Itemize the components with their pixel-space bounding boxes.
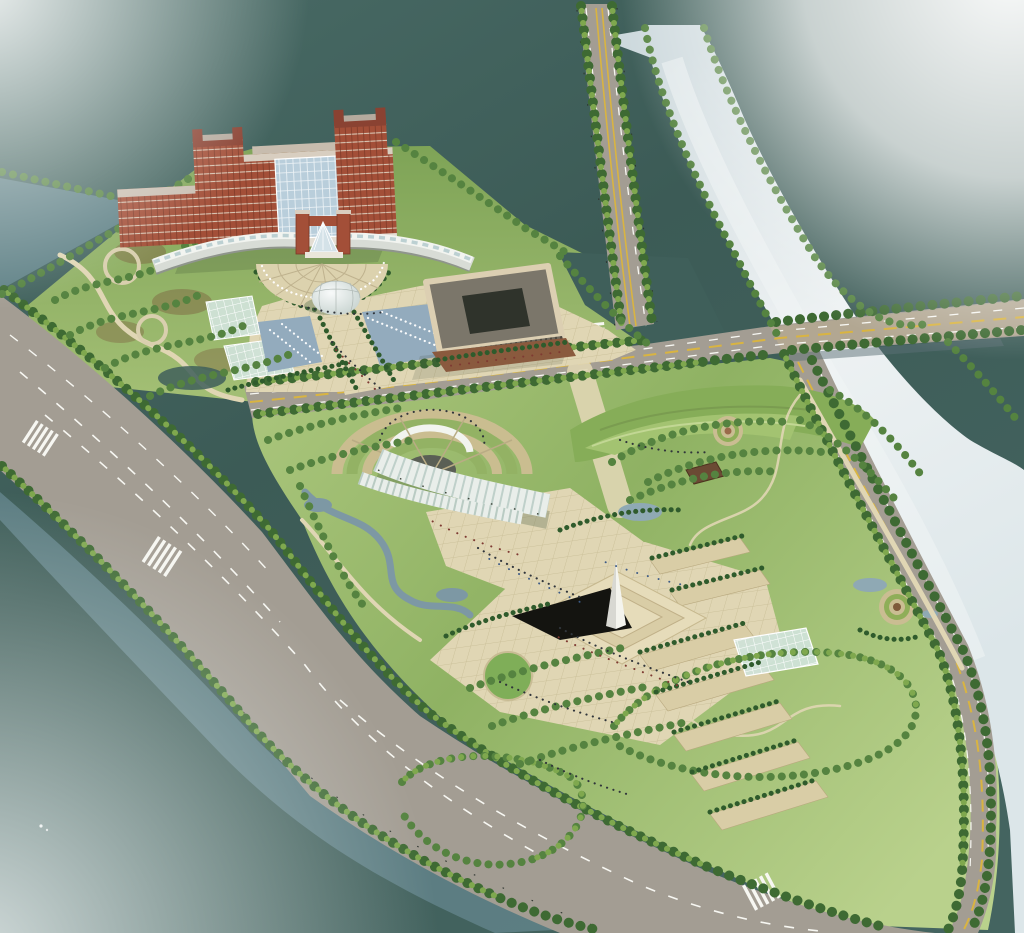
bird xyxy=(39,824,42,827)
atmosphere xyxy=(0,0,1024,933)
masterplan-rendering xyxy=(0,0,1024,933)
rendering-canvas xyxy=(0,0,1024,933)
bird xyxy=(46,829,48,831)
